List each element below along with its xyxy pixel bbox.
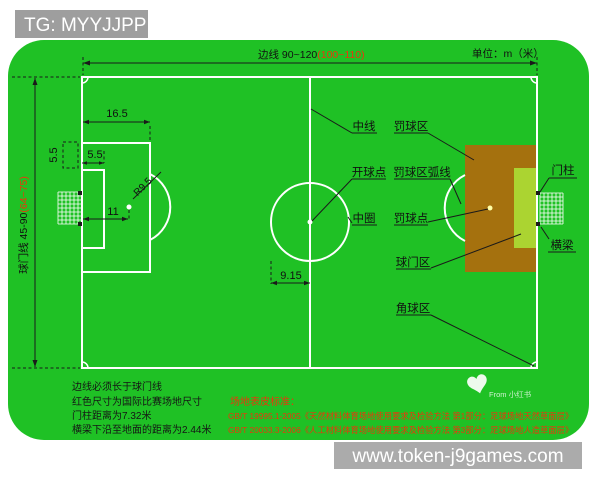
circle-radius-value: 9.15 [280,270,301,282]
penalty-area-label: 罚球区 [394,119,429,133]
bottom-url-text: www.token-j9games.com [351,446,563,467]
penalty-spot-value: 11 [107,206,118,218]
crossbar-label: 横梁 [551,238,574,252]
touchline-label: 边线 90~120(100~110) [258,48,365,61]
note-line: 边线必须长于球门线 [72,380,162,393]
goal-post-label: 门柱 [552,163,575,177]
goal-side-value: 5.5 [48,147,60,162]
note-line-red: 红色尺寸为国际比赛场地尺寸 [72,395,202,408]
right-penalty-spot [488,206,493,211]
top-watermark-text: TG: MYYJJPP [24,15,146,36]
center-circle-label: 中圈 [353,212,376,225]
standard-line: GB/T 19995.1-2005《天然材料体育场地使用要求及检验方法 第1部分… [228,411,573,421]
surface-standards-title: 场地表皮标准： [230,395,300,408]
left-goal-net [58,192,82,224]
center-line-label: 中线 [353,119,376,133]
unit-label: 单位：m（米） [472,47,544,60]
penalty-arc-label: 罚球区弧线 [393,165,451,179]
source-badge-text: From 小红书 [489,389,532,399]
top-watermark: TG: MYYJJPP [15,10,148,38]
kickoff-spot [308,220,313,225]
left-post-bottom-marker [78,222,82,226]
kickoff-point-label: 开球点 [352,165,387,179]
right-post-bottom-marker [536,222,540,226]
goal-area-label: 球门区 [396,255,431,269]
note-line: 横梁下沿至地面的距离为2.44米 [72,423,211,436]
football-field-diagram: 边线 90~120(100~110) 单位：m（米） 球门线 45-90(64~… [0,0,600,480]
diagram-canvas: 边线 90~120(100~110) 单位：m（米） 球门线 45-90(64~… [0,0,600,480]
goal-depth-value: 5.5 [87,149,102,161]
corner-area-label: 角球区 [396,301,431,315]
penalty-depth-value: 16.5 [106,108,127,120]
goal-line-label: 球门线 45-90(64~75) [17,176,30,274]
left-post-top-marker [78,191,82,195]
right-post-top-marker [536,191,540,195]
standard-line: GB/T 20033.3-2006《人工材料体育场地使用要求及检验方法 第3部分… [228,425,573,435]
bottom-url-bar: www.token-j9games.com [334,442,582,469]
left-penalty-spot [127,205,132,210]
goal-area-highlight [514,168,537,248]
penalty-spot-label: 罚球点 [394,211,429,225]
note-line: 门柱距离为7.32米 [72,409,151,422]
